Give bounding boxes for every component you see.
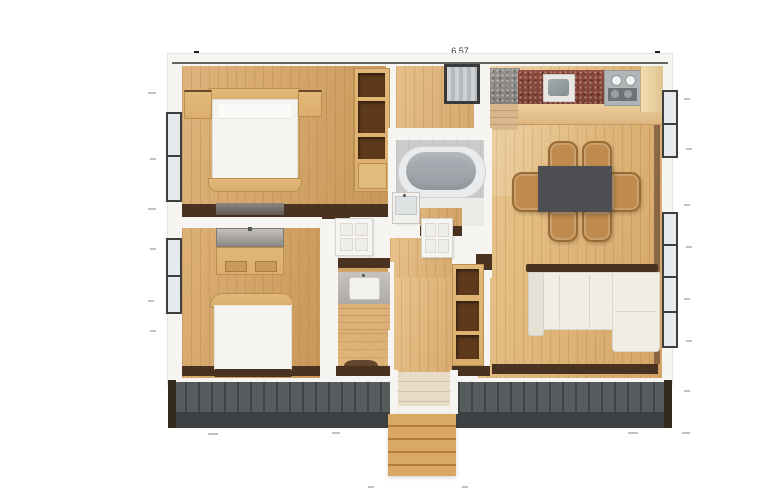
tick-mark	[368, 486, 374, 488]
top-wall-inner-line	[172, 62, 668, 64]
burner-4	[624, 90, 632, 98]
washroom-faucet	[362, 274, 365, 277]
door-panel	[438, 223, 449, 237]
bedroom1-closet-shelving	[354, 68, 390, 192]
burner-3	[611, 90, 619, 98]
bed1-footboard	[208, 178, 302, 192]
door-panel	[438, 239, 449, 253]
tick-mark	[332, 432, 340, 434]
bed2-footboard	[214, 369, 292, 377]
window-right-1	[662, 90, 678, 158]
vanity-faucet	[403, 194, 406, 197]
sofa-cushion-line	[589, 275, 590, 327]
entry-shelf-cubby-3	[456, 335, 479, 359]
sofa-chaise-section	[612, 272, 660, 352]
burner-2	[625, 75, 636, 86]
tick-mark	[150, 158, 156, 160]
bedroom1-dresser	[216, 203, 284, 215]
tick-mark	[150, 330, 156, 332]
sofa-left-armrest	[528, 272, 544, 336]
washroom-top-cap	[338, 258, 390, 268]
deck-post-left	[168, 380, 176, 428]
bottom-cap-living	[492, 364, 658, 374]
tick-mark	[684, 390, 690, 392]
vanity-basin	[395, 196, 417, 215]
window-mullion	[168, 155, 180, 157]
sofa-back-trim	[526, 264, 658, 272]
door-panel	[355, 223, 368, 236]
door-panel	[355, 238, 368, 251]
window-left-2	[166, 238, 182, 314]
kitchen-corner-steps	[490, 104, 518, 130]
dresser-knob	[248, 227, 252, 231]
bedroom2-desk	[216, 247, 284, 275]
deck-post-right	[664, 380, 672, 428]
window-right-3	[662, 276, 678, 348]
panel-door-left	[335, 218, 373, 256]
refrigerator	[444, 64, 480, 104]
window-mullion	[664, 244, 676, 246]
closet-cabinet	[358, 163, 387, 189]
closet-cubby-3	[358, 137, 385, 159]
tick-mark	[686, 340, 692, 342]
dining-chair-bottom-2	[582, 210, 612, 242]
dining-table	[538, 166, 612, 212]
tick-mark	[462, 486, 468, 488]
interior-entry-steps	[398, 372, 450, 406]
nightstand-left	[184, 90, 212, 119]
stove	[604, 70, 642, 106]
tick-mark	[684, 298, 690, 300]
washroom-sink-counter	[338, 272, 390, 304]
dining-chair-right	[610, 172, 641, 212]
washroom-toilet	[344, 360, 378, 372]
wall-bedroom2-top	[182, 216, 322, 228]
window-mullion	[168, 275, 180, 277]
outdoor-steps	[388, 414, 456, 476]
door-panel	[425, 223, 436, 237]
entry-shelf-cubby-1	[456, 269, 479, 295]
closet-cubby-2	[358, 101, 385, 133]
door-panel	[340, 238, 353, 251]
washroom-basin	[349, 277, 380, 300]
entry-floor	[392, 278, 452, 372]
tick-mark	[148, 208, 156, 210]
window-mullion	[664, 311, 676, 313]
entry-landing	[396, 406, 452, 414]
corner-counter-gray	[490, 68, 520, 104]
tick-mark	[150, 248, 156, 250]
tick-mark	[686, 246, 692, 248]
bed1-pillow-line	[219, 104, 291, 119]
sofa-cushion-line	[559, 275, 560, 327]
tick-mark	[684, 98, 690, 100]
tick-mark	[628, 432, 638, 434]
door-panel	[425, 239, 436, 253]
dining-chair-bottom-1	[548, 210, 578, 242]
tick-mark	[682, 432, 690, 434]
panel-door-right	[421, 218, 453, 258]
entry-shelf-cubby-2	[456, 301, 479, 331]
bathtub-water-line	[412, 157, 470, 185]
sink-basin	[548, 79, 569, 96]
bed1-mattress	[212, 99, 298, 183]
tick-mark	[208, 433, 218, 435]
window-right-2	[662, 212, 678, 278]
nightstand-right	[298, 90, 322, 117]
tick-mark	[686, 148, 692, 150]
bath-vanity	[392, 192, 420, 224]
tall-cabinet	[640, 66, 663, 112]
tick-mark	[148, 300, 154, 302]
burner-1	[611, 75, 622, 86]
floor-plan-canvas: 6.57	[0, 0, 781, 502]
tick-mark	[148, 92, 156, 94]
closet-cubby-1	[358, 73, 385, 97]
window-mullion	[664, 123, 676, 125]
tick-mark	[684, 204, 690, 206]
bed2-mattress	[214, 305, 292, 373]
stove-lower-panel	[608, 88, 637, 101]
window-left-1	[166, 112, 182, 202]
bedroom1-bottom-wall-cap	[182, 204, 392, 217]
washroom-wood-shelf	[338, 304, 390, 330]
desk-drawer-1	[225, 261, 247, 272]
door-panel	[340, 223, 353, 236]
entry-shelving-unit	[452, 264, 484, 366]
bedroom2-dresser	[216, 228, 284, 247]
kitchen-sink	[543, 74, 575, 102]
sofa-cushion-line	[615, 311, 657, 312]
desk-drawer-2	[255, 261, 277, 272]
